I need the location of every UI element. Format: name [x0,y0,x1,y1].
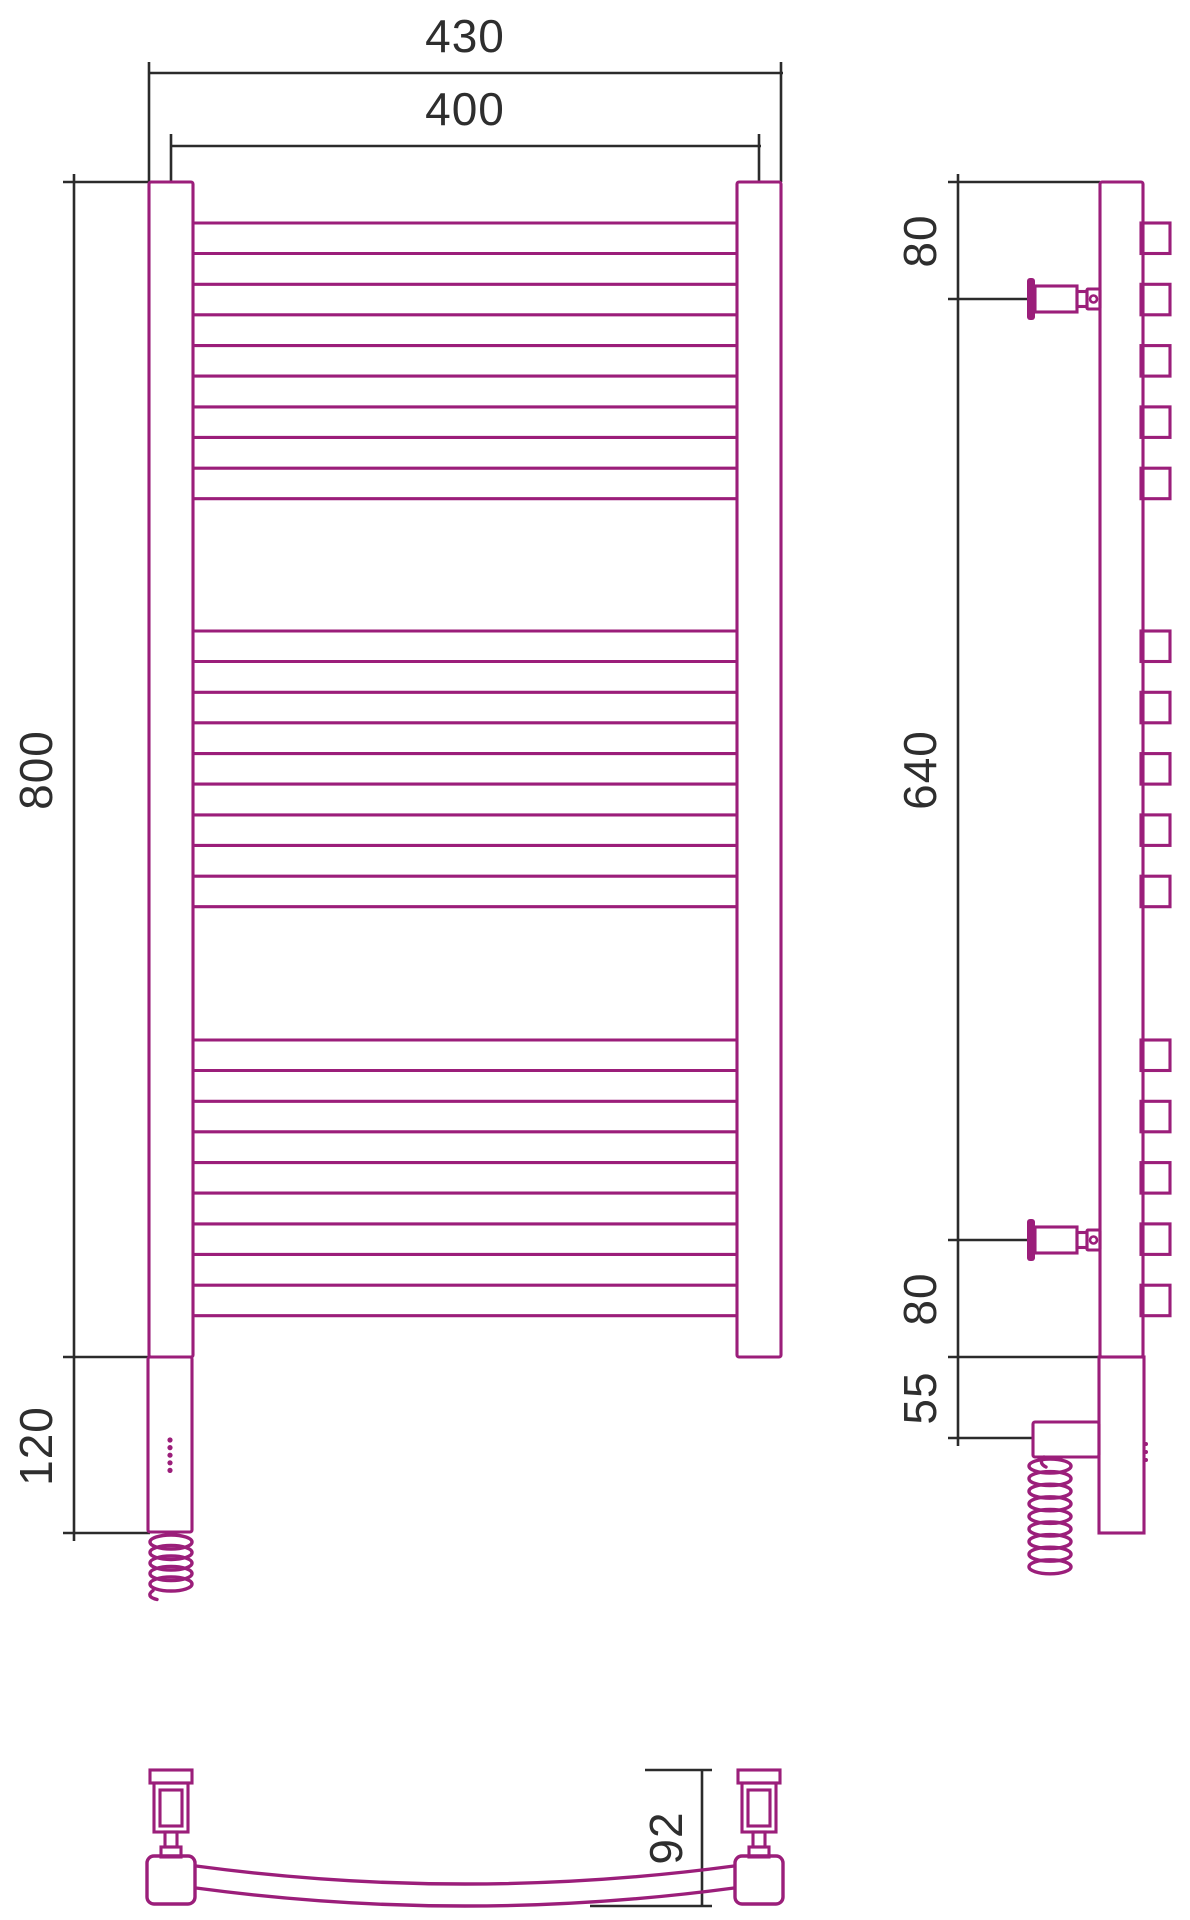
dim-label-overall-width: 430 [365,12,565,60]
rung-stub [1141,815,1170,846]
power-coil-tail [150,1591,157,1600]
dim-label-top-offset: 80 [896,141,944,341]
dim-label-unit-offset: 55 [896,1298,944,1498]
bracket-cap [738,1770,780,1783]
rung-stub [1141,407,1170,438]
rung-stub [1141,692,1170,723]
rung-stub [1141,631,1170,662]
side-view [1027,182,1170,1574]
front-view [148,182,781,1600]
technical-drawing [0,0,1190,1920]
rung-stub [1141,1101,1170,1132]
cable-box-outline [1033,1422,1099,1457]
mount-block [147,1856,195,1904]
post-side-outline [1100,182,1143,1357]
rung-stub [1141,754,1170,785]
rung-stub [1141,1163,1170,1194]
mount-block [735,1856,783,1904]
led-dot-side [1144,1442,1148,1446]
bracket-foot [161,1847,181,1857]
bracket-screw [1090,1237,1097,1244]
rung-stub [1141,468,1170,499]
dim-label-bracket-span: 640 [896,670,944,870]
bracket-body [1035,1227,1077,1253]
post-left-outline [149,182,193,1357]
rung-stub [1141,1040,1170,1071]
drawing-canvas: 430 400 800 120 80 640 80 55 92 [0,0,1190,1920]
dimension-lines [63,62,1143,1906]
dim-label-unit-height: 120 [12,1346,60,1546]
led-dot-side [1144,1450,1148,1454]
bracket-screw [1090,296,1097,303]
led-dot-side [1144,1458,1148,1462]
bracket-inner [160,1790,182,1826]
heater-unit-outline [148,1357,192,1532]
bracket-neck [753,1832,765,1847]
bracket-neck [165,1832,177,1847]
led-dot [167,1468,172,1473]
bracket-inner [748,1790,770,1826]
dim-label-depth: 92 [642,1738,690,1920]
rung-stub [1141,1224,1170,1255]
led-dot [167,1437,172,1442]
rung-stub [1141,1285,1170,1316]
bracket-body [1035,286,1077,312]
rung-stub [1141,876,1170,907]
rung-stub [1141,284,1170,315]
dim-label-pipe-width: 400 [365,85,565,133]
rung-stub [1141,223,1170,254]
dim-label-rail-height: 800 [12,670,60,870]
heater-unit-side-outline [1099,1357,1144,1533]
rung-stub [1141,346,1170,377]
bracket-cap [150,1770,192,1783]
led-dot [167,1453,172,1458]
bracket-foot [749,1847,769,1857]
led-dot [167,1460,172,1465]
post-right-outline [737,182,781,1357]
led-dot [167,1445,172,1450]
